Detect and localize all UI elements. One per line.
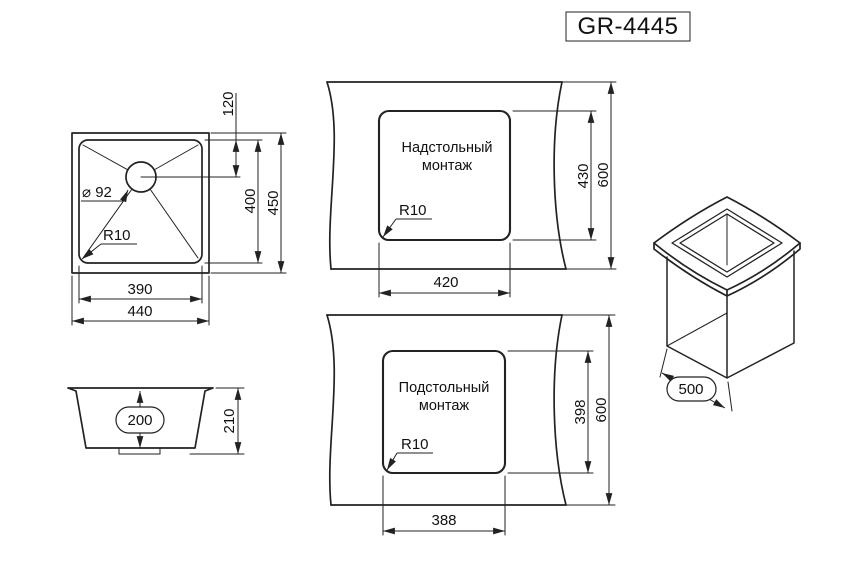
dim-corner-radius-under: R10: [401, 436, 429, 453]
under-mount-label-1: Подстольный: [399, 380, 490, 396]
dim-cutout-width-under: 388: [431, 512, 456, 529]
cutout-outline-surface: [379, 111, 510, 240]
model-label: GR-4445: [566, 12, 690, 41]
dim-bowl-length: 400: [242, 188, 259, 213]
counter-left-break-line-under: [327, 315, 334, 505]
technical-drawing-sheet: GR-4445 120 400 450 390 440 ⌀ 92 R10: [0, 0, 853, 580]
dim-cutout-length-under: 398: [572, 399, 589, 424]
counter-right-break-line-under: [554, 315, 566, 505]
r10-leader-under: [387, 453, 397, 470]
top-view: 120 400 450 390 440 ⌀ 92 R10: [72, 91, 286, 325]
dim-bowl-depth: 200: [127, 412, 152, 429]
under-mount-label-2: монтаж: [419, 398, 470, 414]
surface-mount-label-2: монтаж: [422, 158, 473, 174]
dim-cutout-length-surface: 430: [575, 163, 592, 188]
dim-drain-diameter: ⌀ 92: [82, 184, 112, 201]
dim-overall-height: 210: [221, 408, 238, 433]
iso-cabinet-interior-edge: [667, 313, 727, 346]
dim-overall-width: 440: [127, 303, 152, 320]
sink-outer-outline: [72, 133, 209, 273]
dim-corner-radius-surface: R10: [399, 202, 427, 219]
dim-counter-depth-surface: 600: [595, 162, 612, 187]
side-view: 200 210: [68, 388, 244, 454]
dim-corner-radius-top-view: R10: [103, 227, 131, 244]
model-number: GR-4445: [578, 13, 679, 40]
dim-cabinet-width: 500: [678, 381, 703, 398]
under-mount-view: Подстольный монтаж R10 398 600 388: [327, 315, 615, 535]
dim-bowl-width: 390: [127, 281, 152, 298]
r10-leader-surface: [383, 219, 396, 237]
dim-cutout-width-surface: 420: [433, 274, 458, 291]
surface-mount-label-1: Надстольный: [401, 140, 492, 156]
dim-counter-depth-under: 600: [593, 397, 610, 422]
drawing-canvas: GR-4445 120 400 450 390 440 ⌀ 92 R10: [0, 0, 853, 580]
counter-left-break-line: [327, 82, 334, 269]
counter-right-break-line: [554, 82, 566, 269]
drain-stub: [119, 448, 160, 454]
dim-overall-length: 450: [265, 190, 282, 215]
surface-mount-view: Надстольный монтаж R10 430 600 420: [327, 82, 616, 297]
iso-view: 500: [654, 197, 800, 411]
dim-drain-offset: 120: [220, 91, 237, 116]
